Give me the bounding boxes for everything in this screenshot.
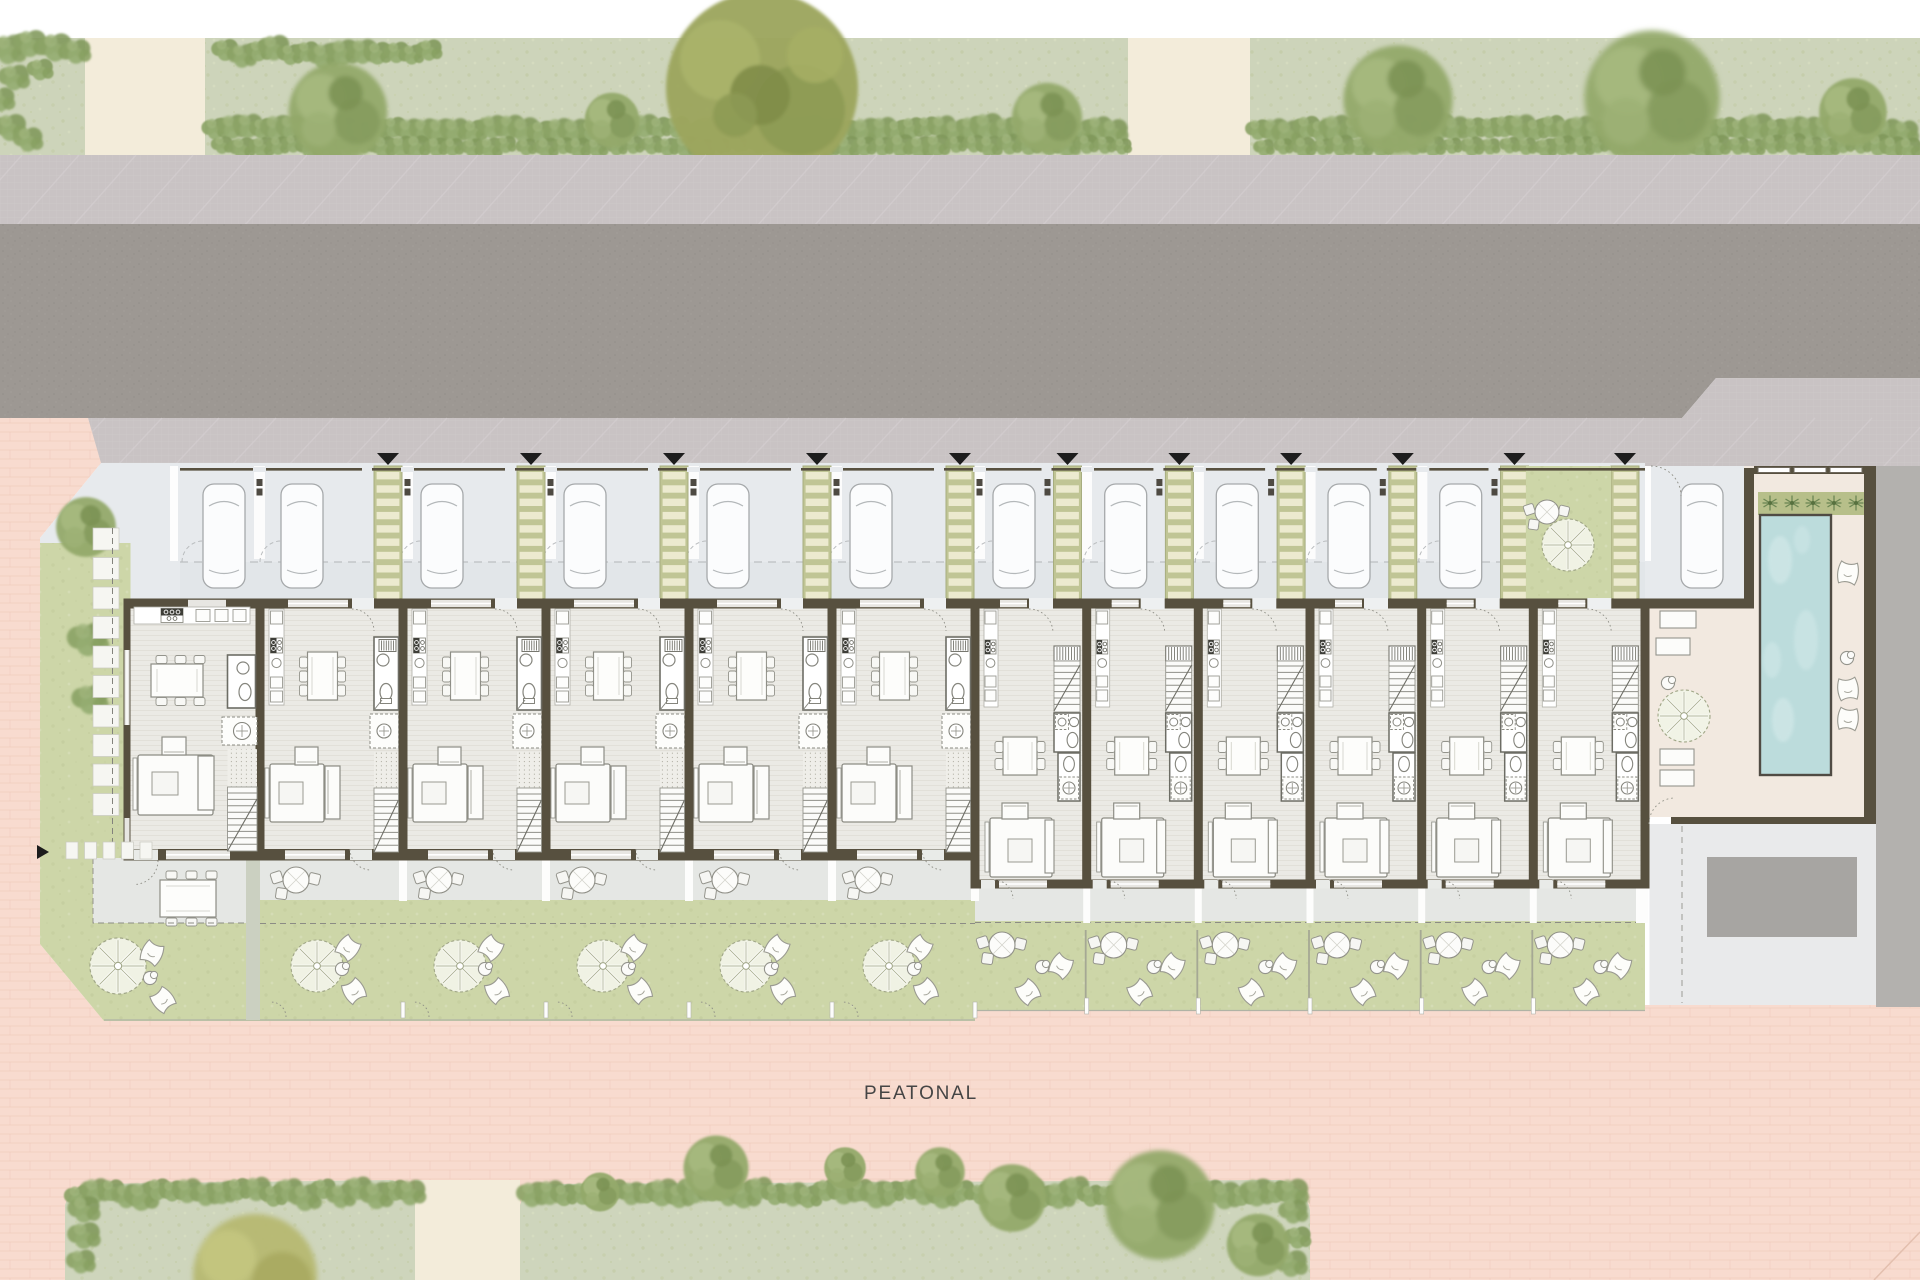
svg-text:PEATONAL: PEATONAL <box>864 1083 978 1104</box>
